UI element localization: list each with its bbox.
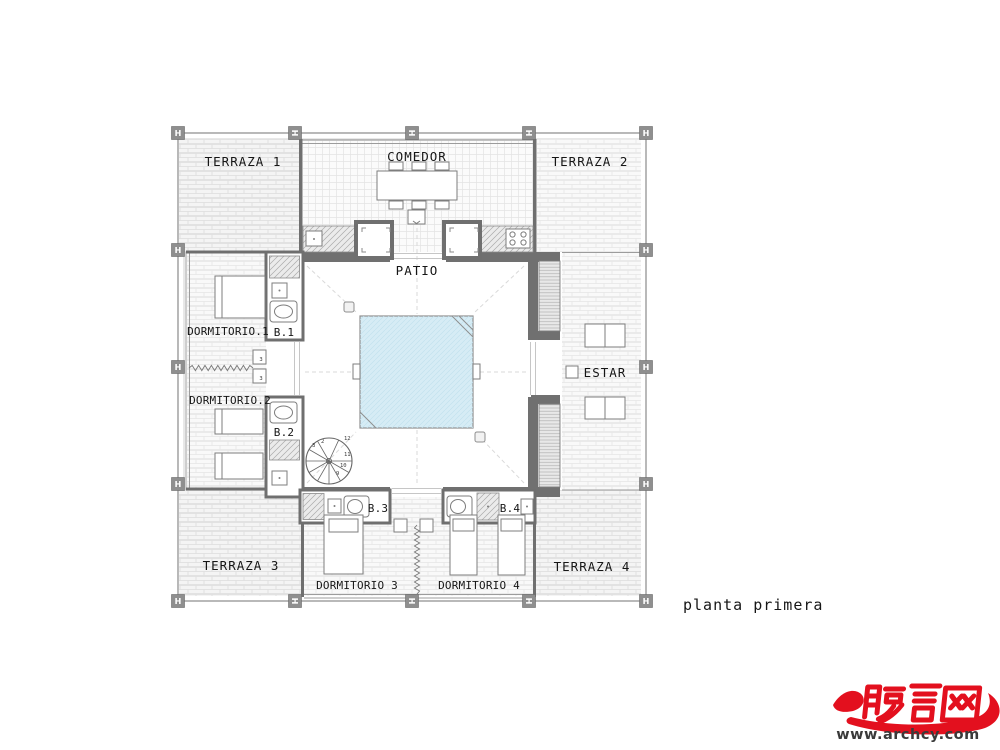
column-marker: H (640, 127, 653, 140)
svg-text:H: H (524, 130, 533, 137)
dormitorio-1-bed (215, 276, 265, 318)
column-marker: H (523, 595, 536, 608)
stair-step-number: 10 (340, 463, 347, 469)
column-marker: H (406, 127, 419, 140)
kitchen-counter-east (480, 226, 533, 252)
b1-sink-counter (270, 256, 300, 278)
svg-text:H: H (290, 598, 299, 605)
stair-step-number: 9 (336, 471, 339, 477)
svg-text:H: H (643, 129, 650, 138)
svg-text:H: H (643, 480, 650, 489)
room-label-b4: B.4 (500, 502, 521, 515)
patio-drain-se (475, 432, 485, 442)
b3-toilet-icon (328, 499, 341, 513)
column-marker: H (640, 361, 653, 374)
bathroom-b2 (266, 397, 303, 497)
stair-step-number: 3 (312, 443, 315, 449)
stair-step-number: 11 (344, 452, 351, 458)
watermark-url: www.archcy.com (836, 727, 980, 743)
closet-mark: 3 (259, 357, 262, 363)
svg-text:H: H (643, 246, 650, 255)
column-marker: H (172, 478, 185, 491)
column-marker: H (172, 244, 185, 257)
terraza-3-floor (179, 490, 301, 596)
column-marker: H (640, 595, 653, 608)
svg-text:H: H (290, 130, 299, 137)
estar-sofa-north (585, 324, 625, 347)
room-label-terraza2: TERRAZA 2 (552, 154, 629, 169)
room-label-estar: ESTAR (584, 365, 627, 380)
stove-icon (506, 229, 530, 248)
b3-sink-counter (303, 494, 324, 520)
column-marker: H (289, 127, 302, 140)
estar-glazing-strips (539, 261, 560, 487)
watermark: 畅言网 www.archcy.com (833, 686, 1000, 743)
room-label-dormitorio2: DORMITORIO.2 (189, 394, 271, 407)
b4-toilet-icon (521, 499, 533, 514)
b2-sink-counter (270, 440, 300, 460)
dining-chair (389, 201, 403, 209)
svg-text:H: H (643, 597, 650, 606)
dining-chair (435, 201, 449, 209)
pool-step-left (353, 364, 360, 379)
closet-box-lower: 3 (253, 369, 266, 383)
chimney-column-west (356, 222, 392, 258)
room-label-terraza3: TERRAZA 3 (203, 558, 280, 573)
kitchen-counter-west (303, 226, 356, 252)
b1-toilet-icon (272, 283, 287, 298)
room-label-dormitorio4: DORMITORIO 4 (438, 579, 520, 592)
room-label-patio: PATIO (396, 263, 439, 278)
column-marker: H (172, 361, 185, 374)
column-marker: H (640, 478, 653, 491)
room-label-b2: B.2 (274, 426, 294, 439)
pool (353, 316, 480, 428)
b4-bathtub-icon (447, 496, 472, 517)
column-marker: H (172, 127, 185, 140)
svg-text:H: H (175, 480, 182, 489)
room-label-dormitorio3: DORMITORIO 3 (316, 579, 398, 592)
stair-step-number: 2 (321, 439, 324, 445)
room-label-b1: B.1 (274, 326, 294, 339)
pool-step-right (473, 364, 480, 379)
room-label-comedor: COMEDOR (387, 149, 447, 164)
room-label-b3: B.3 (368, 502, 388, 515)
floor-plan-drawing: 3 3 12 11 10 (0, 0, 1000, 750)
svg-text:H: H (175, 246, 182, 255)
room-label-terraza1: TERRAZA 1 (205, 154, 282, 169)
dining-chair (412, 201, 426, 209)
svg-text:H: H (643, 363, 650, 372)
plan-title: planta primera (683, 596, 823, 614)
dormitorio-3-bed (324, 515, 363, 574)
estar-sofa-south (585, 397, 625, 419)
svg-text:H: H (524, 598, 533, 605)
nightstand (394, 519, 407, 532)
b2-bathtub-icon (270, 402, 297, 423)
column-marker: H (523, 127, 536, 140)
b2-toilet-icon (272, 471, 287, 485)
dormitorio-4-bed-1 (450, 515, 477, 575)
dining-table (377, 171, 457, 200)
dormitorio-2-bed-2 (215, 453, 263, 479)
svg-text:H: H (175, 363, 182, 372)
stair-step-number: 12 (344, 436, 351, 442)
column-marker: H (640, 244, 653, 257)
b1-bathtub-icon (270, 301, 297, 322)
closet-mark: 3 (259, 376, 262, 382)
terraza-4-floor (536, 490, 641, 596)
patio-drain-nw (344, 302, 354, 312)
chimney-column-east (444, 222, 480, 258)
serving-cart (408, 210, 425, 224)
floor-plan-page: 3 3 12 11 10 (0, 0, 1000, 750)
svg-text:H: H (175, 129, 182, 138)
column-marker: H (289, 595, 302, 608)
b3-bathtub-icon (344, 496, 369, 517)
svg-text:H: H (407, 598, 416, 605)
column-marker: H (406, 595, 419, 608)
dormitorio-2-bed-1 (215, 409, 263, 434)
room-label-terraza4: TERRAZA 4 (554, 559, 631, 574)
estar-side-table (566, 366, 578, 378)
room-label-dormitorio1: DORMITORIO.1 (187, 325, 269, 338)
svg-text:H: H (175, 597, 182, 606)
closet-box-upper: 3 (253, 350, 266, 364)
column-marker: H (172, 595, 185, 608)
dormitorio-4-bed-2 (498, 515, 525, 575)
kitchen-sink-icon (306, 231, 322, 246)
svg-text:H: H (407, 130, 416, 137)
nightstand (420, 519, 433, 532)
